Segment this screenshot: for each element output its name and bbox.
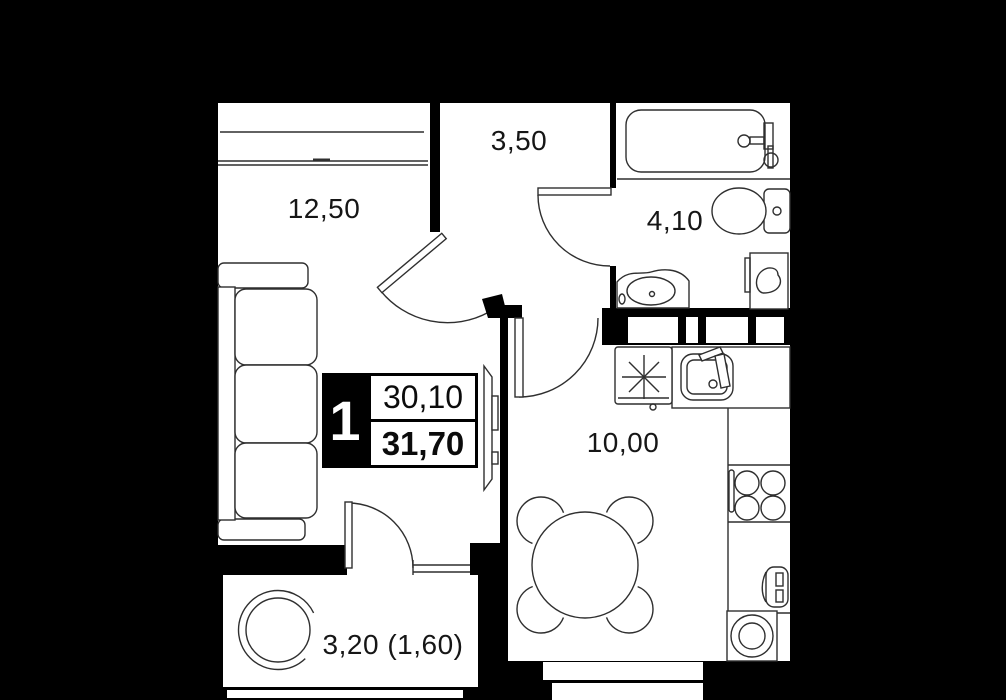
- vent-shaft-3: [706, 317, 748, 343]
- wall-balcony-right: [478, 575, 508, 700]
- balcony-doorway: [347, 545, 470, 575]
- wall-kitchen-door-stub: [488, 305, 522, 318]
- kitchen-area-label: 10,00: [587, 427, 660, 459]
- vent-shaft-4: [756, 317, 784, 343]
- unit-areas: 30,10 31,70: [368, 373, 478, 468]
- kitchen-floor: [508, 318, 790, 661]
- vent-shaft-2: [686, 317, 698, 343]
- kitchen-window-sill: [543, 662, 703, 680]
- unit-info-flag[interactable]: 1 30,10 31,70: [322, 373, 478, 468]
- balcony-area-label: 3,20 (1,60): [323, 629, 464, 661]
- unit-rooms-count: 1: [322, 373, 368, 468]
- balcony-railing: [227, 690, 463, 698]
- living-room-floor: [218, 103, 430, 545]
- wall-balcony-corner: [470, 543, 508, 575]
- hallway-area-label: 3,50: [491, 125, 548, 157]
- floorplan-canvas: { "plan": { "flag": { "rooms_count": "1"…: [0, 0, 1006, 700]
- kitchen-window-outer: [552, 683, 703, 700]
- bathroom-doorway: [608, 188, 617, 266]
- unit-living-area: 30,10: [371, 376, 475, 419]
- living-room-area-label: 12,50: [288, 193, 361, 225]
- bathroom-area-label: 4,10: [647, 205, 704, 237]
- unit-total-area: 31,70: [371, 419, 475, 465]
- vent-shaft-1: [628, 317, 678, 343]
